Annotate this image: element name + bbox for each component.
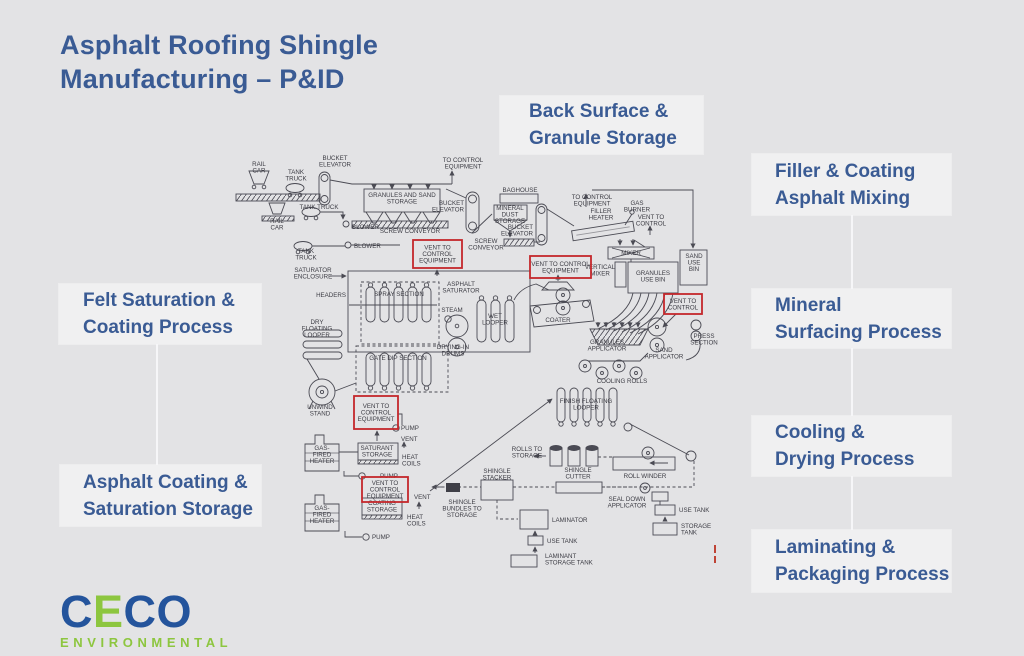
callout-line: Surfacing Process [775,319,951,346]
diagram-label: ROLL WINDER [624,473,667,480]
diagram-label: PUMP [372,534,390,541]
diagram-label: HEATCOILS [407,514,426,528]
diagram-label: SHINGLECUTTER [564,467,591,481]
callout-line: Laminating & [775,534,951,561]
callout-line: Mineral [775,292,951,319]
diagram-label: BUCKETELEVATOR [501,224,534,238]
ceco-environmental-logo: CECO ENVIRONMENTAL [60,590,232,650]
svg-text:VENT TOCONTROLEQUIPMENT: VENT TOCONTROLEQUIPMENT [358,403,395,423]
diagram-label: GRANULES AND SANDSTORAGE [368,192,436,206]
logo-letter: E [93,586,124,637]
pid-diagram: RAILCARTANKTRUCKBUCKETELEVATORTO CONTROL… [230,148,726,594]
svg-text:VENT TOCONTROL: VENT TOCONTROL [668,298,699,312]
logo-letter: C [60,586,93,637]
logo-subtitle: ENVIRONMENTAL [60,635,232,650]
diagram-label: GAS-FIREDHEATER [310,445,335,465]
diagram-label: HEADERS [316,292,346,299]
diagram-label: RAILCAR [270,218,284,232]
callout-line: Back Surface & [529,98,703,125]
diagram-label: SEAL DOWNAPPLICATOR [608,496,647,510]
diagram-label: LAMINANTSTORAGE TANK [545,553,594,567]
diagram-label: BLOWER [352,224,379,231]
page-title-line2: Manufacturing – P&ID [60,62,378,96]
diagram-label: DRYING-INDRUMS [437,344,469,358]
callout-line: Filler & Coating [775,158,951,185]
connector-line [851,476,853,530]
callout-mineral-surfacing-process: Mineral Surfacing Process [752,289,951,348]
diagram-label: LAMINATOR [552,517,588,524]
diagram-label: USE TANK [547,538,578,545]
diagram-label: SATURANTSTORAGE [361,445,394,459]
diagram-label: SHINGLEBUNDLES TOSTORAGE [442,499,482,519]
diagram-label: BAGHOUSE [502,187,537,194]
diagram-label: GRANULESUSE BIN [636,270,670,284]
diagram-label: SANDAPPLICATOR [645,347,684,361]
diagram-label: GAS-FIREDHEATER [310,505,335,525]
diagram-label: VENT [401,436,418,443]
diagram-label: GASBURNER [624,200,651,214]
diagram-label: TO CONTROLEQUIPMENT [443,157,484,171]
diagram-label: UNWINDSTAND [307,404,333,418]
diagram-label: TANKTRUCK [285,169,307,183]
diagram-label: PUMP [401,425,419,432]
diagram-label: COATER [545,317,571,324]
vent-to-control-callout: VENT TOCONTROLEQUIPMENT [354,396,398,429]
ceco-wordmark: CECO [60,590,232,634]
svg-text:VENT TOCONTROLEQUIPMENT: VENT TOCONTROLEQUIPMENT [419,244,456,264]
diagram-label: GRANULESAPPLICATOR [588,339,627,353]
vent-to-control-callout: VENT TOCONTROLEQUIPMENT [413,240,462,268]
page-title: Asphalt Roofing Shingle Manufacturing – … [60,28,378,96]
diagram-label: VENT TOCONTROL [636,214,667,228]
callout-line: Cooling & [775,419,951,446]
diagram-label: GATE DIP SECTION [369,355,427,362]
logo-letter: O [157,586,193,637]
diagram-label: TO CONTROLEQUIPMENT [572,194,613,208]
diagram-label: BLOWER [354,243,381,250]
diagram-label: VENT [414,494,431,501]
vent-to-control-callout: VENT TOCONTROLEQUIPMENT [362,477,408,502]
callout-line: Drying Process [775,446,951,473]
diagram-label: STORAGETANK [681,523,711,537]
diagram-label: SANDUSEBIN [685,253,703,273]
callout-line: Asphalt Mixing [775,185,951,212]
diagram-label: TANKTRUCK [295,248,317,262]
diagram-label: FILLERHEATER [589,208,614,222]
diagram-label: BUCKETELEVATOR [319,155,352,169]
diagram-label: PRESSSECTION [690,333,718,347]
callout-line: Packaging Process [775,561,951,588]
diagram-label: USE TANK [679,507,710,514]
svg-text:VENT TO CONTROLEQUIPMENT: VENT TO CONTROLEQUIPMENT [531,261,590,275]
connector-line [156,344,158,465]
connector-line [851,215,853,289]
callout-filler-coating-asphalt-mixing: Filler & Coating Asphalt Mixing [752,154,951,215]
diagram-label: HEATCOILS [402,454,421,468]
svg-text:VENT TOCONTROLEQUIPMENT: VENT TOCONTROLEQUIPMENT [367,480,404,500]
page-title-line1: Asphalt Roofing Shingle [60,28,378,62]
vent-to-control-callout: VENT TO CONTROLEQUIPMENT [530,256,591,278]
diagram-label: TANK TRUCK [300,204,340,211]
diagram-label: SATURATORENCLOSURE [294,267,333,281]
diagram-label: COOLING ROLLS [597,378,648,385]
diagram-label: BUCKETELEVATOR [432,200,465,214]
diagram-label: ASPHALTSATURATOR [442,281,480,295]
diagram-label: SPRAY SECTION [374,291,424,298]
diagram-label: FINISH FLOATINGLOOPER [560,398,613,412]
diagram-label: SCREWCONVEYOR [468,238,504,252]
diagram-label: MIXER [621,250,641,257]
diagram-label: SCREW CONVEYOR [380,228,441,235]
vent-to-control-callout: VENT TOCONTROL [664,294,702,314]
callout-back-surface-granule-storage: Back Surface & Granule Storage [500,96,703,154]
callout-laminating-packaging-process: Laminating & Packaging Process [752,530,951,592]
logo-letter: C [124,586,157,637]
diagram-label: ROLLS TOSTORAGE [512,446,543,460]
diagram-label: RAILCAR [252,161,266,175]
diagram-label: STEAM [441,307,462,314]
callout-cooling-drying-process: Cooling & Drying Process [752,416,951,476]
connector-line [851,348,853,416]
diagram-label: SHINGLESTACKER [483,468,512,482]
diagram-label: MINERALDUSTSTORAGE [495,205,525,225]
diagram-label: DRYFLOATINGLOOPER [302,319,333,339]
